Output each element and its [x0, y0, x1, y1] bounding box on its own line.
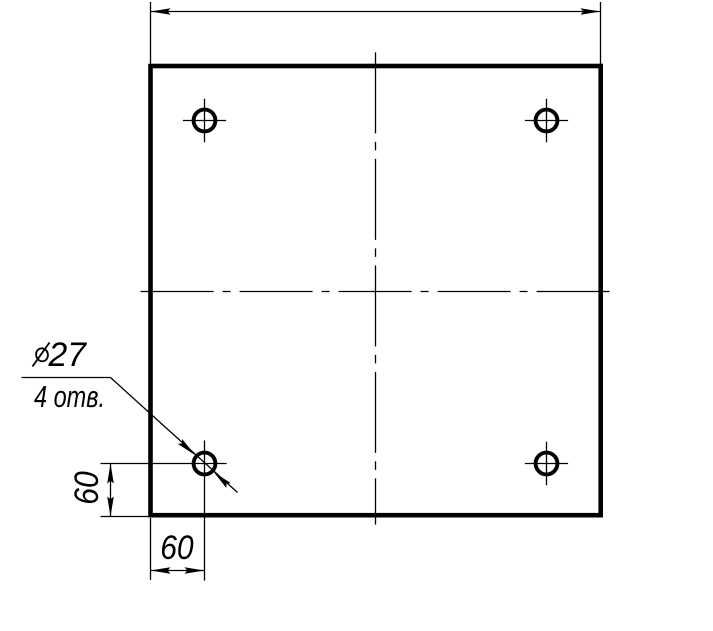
svg-text:27: 27 — [48, 336, 88, 374]
svg-text:60: 60 — [68, 471, 106, 504]
svg-text:60: 60 — [160, 529, 193, 567]
svg-text:4 отв.: 4 отв. — [34, 379, 105, 414]
